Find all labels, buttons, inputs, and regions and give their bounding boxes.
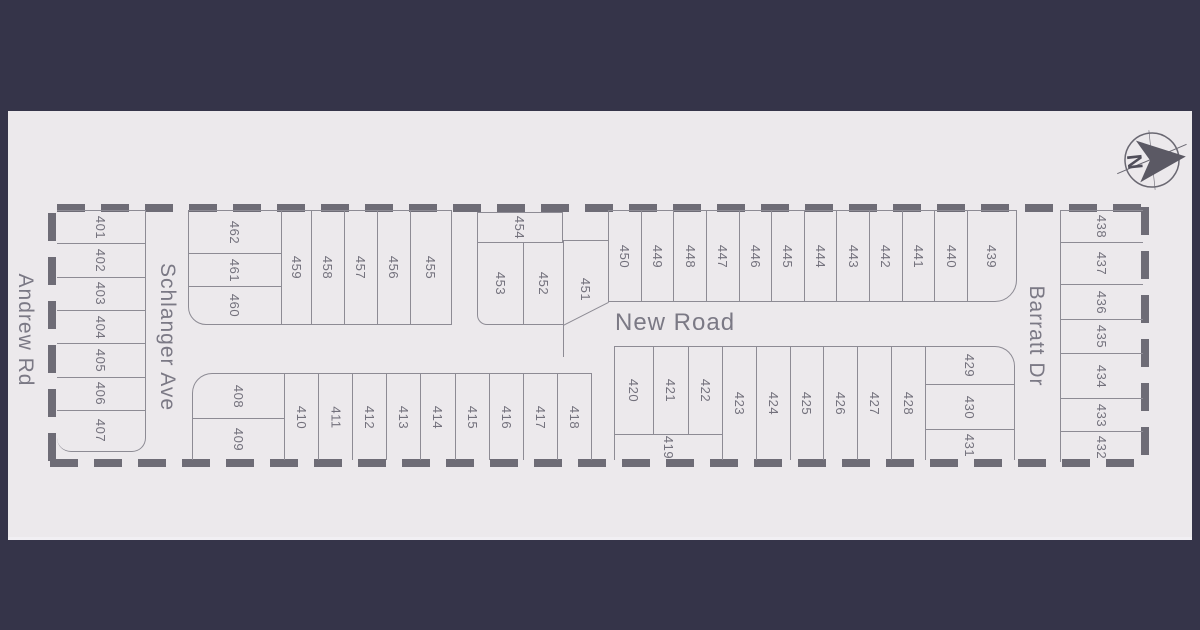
lot-430: 430 [926, 384, 1014, 429]
lot-413: 413 [386, 374, 420, 460]
lot-412: 412 [352, 374, 386, 460]
street-label-schlanger-ave: Schlanger Ave [155, 263, 179, 411]
block-455-462: 462 461 460 459 458 457 456 455 [188, 210, 452, 325]
lot-445: 445 [771, 211, 804, 301]
lot-450: 450 [609, 211, 641, 301]
lot-418: 418 [557, 374, 591, 460]
lot-461: 461 [189, 253, 281, 286]
lot-415: 415 [455, 374, 489, 460]
lot-435: 435 [1061, 319, 1143, 353]
map-area: 401 402 403 404 405 406 407 462 461 460 … [8, 111, 1192, 540]
block-408-418: 408 409 410 411 412 413 414 415 416 417 … [192, 373, 592, 460]
lot-438: 438 [1061, 211, 1143, 242]
lot-452: 452 [523, 243, 563, 324]
compass-north-label: N [1122, 153, 1146, 170]
lot-437: 437 [1061, 242, 1143, 284]
lot-462: 462 [189, 211, 281, 253]
lot-429: 429 [926, 347, 1014, 384]
plat-map-card: 401 402 403 404 405 406 407 462 461 460 … [0, 0, 1200, 630]
lot-448: 448 [673, 211, 706, 301]
block-432-438: 438 437 436 435 434 433 432 [1060, 210, 1143, 462]
lot-403: 403 [57, 277, 145, 310]
lot-456: 456 [377, 211, 410, 324]
lot-443: 443 [836, 211, 869, 301]
sub-419-422: 420 421 422 419 [615, 347, 722, 460]
lot-426: 426 [823, 347, 857, 460]
lot-446: 446 [739, 211, 772, 301]
block-452-453: 453 452 [477, 242, 563, 325]
north-arrow-icon: N [1112, 120, 1192, 200]
lot-460: 460 [189, 286, 281, 324]
lot-444: 444 [804, 211, 837, 301]
street-label-andrew-rd: Andrew Rd [13, 274, 37, 387]
block-419-431: 420 421 422 419 423 424 425 426 427 428 … [614, 346, 1015, 460]
lot-451: 451 [563, 240, 608, 357]
lot-411: 411 [318, 374, 352, 460]
lot-409: 409 [193, 418, 284, 460]
lot-410: 410 [284, 374, 318, 460]
street-label-barratt-dr: Barratt Dr [1024, 285, 1048, 386]
block-439-450: 450 449 448 447 446 445 444 443 442 441 … [608, 210, 1017, 302]
block-401-407: 401 402 403 404 405 406 407 [57, 210, 146, 452]
lot-420: 420 [615, 347, 653, 434]
lot-424: 424 [756, 347, 790, 460]
lot-421: 421 [653, 347, 688, 434]
lot-440: 440 [934, 211, 967, 301]
lot-453: 453 [478, 243, 523, 324]
lot-458: 458 [311, 211, 344, 324]
lot-459: 459 [281, 211, 311, 324]
lot-442: 442 [869, 211, 902, 301]
lot-454: 454 [477, 212, 563, 242]
lot-422: 422 [688, 347, 722, 434]
lot-425: 425 [790, 347, 824, 460]
sub-460-462: 462 461 460 [189, 211, 281, 324]
lot-441: 441 [902, 211, 935, 301]
lot-414: 414 [420, 374, 454, 460]
lot-433: 433 [1061, 398, 1143, 431]
lot-427: 427 [857, 347, 891, 460]
lot-417: 417 [523, 374, 557, 460]
lot-402: 402 [57, 243, 145, 276]
lot-419: 419 [615, 434, 722, 460]
lot-406: 406 [57, 377, 145, 410]
lot-432: 432 [1061, 431, 1143, 462]
lot-436: 436 [1061, 284, 1143, 319]
lot-431: 431 [926, 429, 1014, 460]
lot-416: 416 [489, 374, 523, 460]
sub-408-409: 408 409 [193, 374, 284, 460]
lot-401: 401 [57, 211, 145, 243]
lot-407: 407 [57, 410, 145, 451]
sub-429-431: 429 430 431 [925, 347, 1014, 460]
lot-447: 447 [706, 211, 739, 301]
lot-405: 405 [57, 343, 145, 376]
boundary-dash-bottom [50, 459, 1150, 467]
north-compass: N [1112, 120, 1192, 200]
lot-408: 408 [193, 374, 284, 418]
street-label-new-road: New Road [615, 309, 735, 337]
lot-449: 449 [641, 211, 674, 301]
lot-423: 423 [722, 347, 756, 460]
boundary-dash-left [48, 213, 56, 463]
lot-404: 404 [57, 310, 145, 343]
lot-428: 428 [891, 347, 925, 460]
lot-434: 434 [1061, 353, 1143, 398]
lot-457: 457 [344, 211, 377, 324]
lot-455: 455 [410, 211, 451, 324]
lot-439: 439 [967, 211, 1016, 301]
